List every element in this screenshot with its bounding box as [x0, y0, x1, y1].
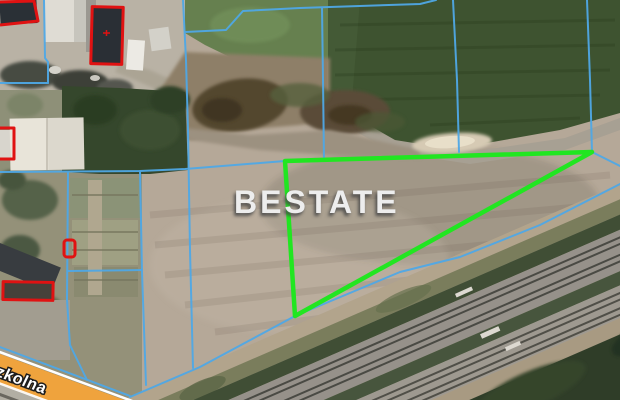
satellite-imagery: Szkolna [0, 0, 620, 400]
white-truck [126, 39, 145, 70]
white-building [10, 117, 85, 170]
map-canvas[interactable]: Szkolna BESTATE [0, 0, 620, 400]
white-trailer [149, 27, 172, 52]
